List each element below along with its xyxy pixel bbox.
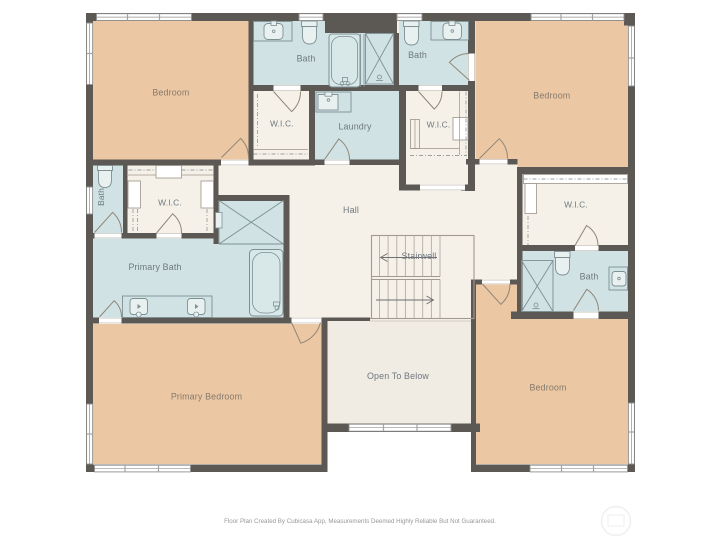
svg-text:Open To Below: Open To Below bbox=[367, 371, 429, 381]
svg-text:W.I.C.: W.I.C. bbox=[158, 198, 182, 208]
svg-text:Bath: Bath bbox=[96, 188, 106, 206]
svg-text:Bedroom: Bedroom bbox=[152, 88, 189, 98]
svg-text:Laundry: Laundry bbox=[338, 122, 372, 132]
svg-text:Bath: Bath bbox=[580, 272, 599, 282]
svg-text:Floor Plan Created By Cubicasa: Floor Plan Created By Cubicasa App, Meas… bbox=[224, 518, 496, 525]
svg-text:Bedroom: Bedroom bbox=[529, 383, 566, 393]
svg-text:Hall: Hall bbox=[343, 205, 359, 215]
svg-text:Stairwell: Stairwell bbox=[402, 251, 437, 261]
svg-text:Bedroom: Bedroom bbox=[533, 91, 570, 101]
svg-text:Primary Bedroom: Primary Bedroom bbox=[171, 392, 242, 402]
svg-text:W.I.C.: W.I.C. bbox=[564, 200, 588, 210]
svg-text:W.I.C.: W.I.C. bbox=[270, 119, 294, 129]
svg-text:W.I.C.: W.I.C. bbox=[427, 120, 451, 130]
svg-text:Bath: Bath bbox=[297, 54, 316, 64]
svg-text:Primary Bath: Primary Bath bbox=[128, 262, 181, 272]
svg-text:Bath: Bath bbox=[408, 50, 427, 60]
